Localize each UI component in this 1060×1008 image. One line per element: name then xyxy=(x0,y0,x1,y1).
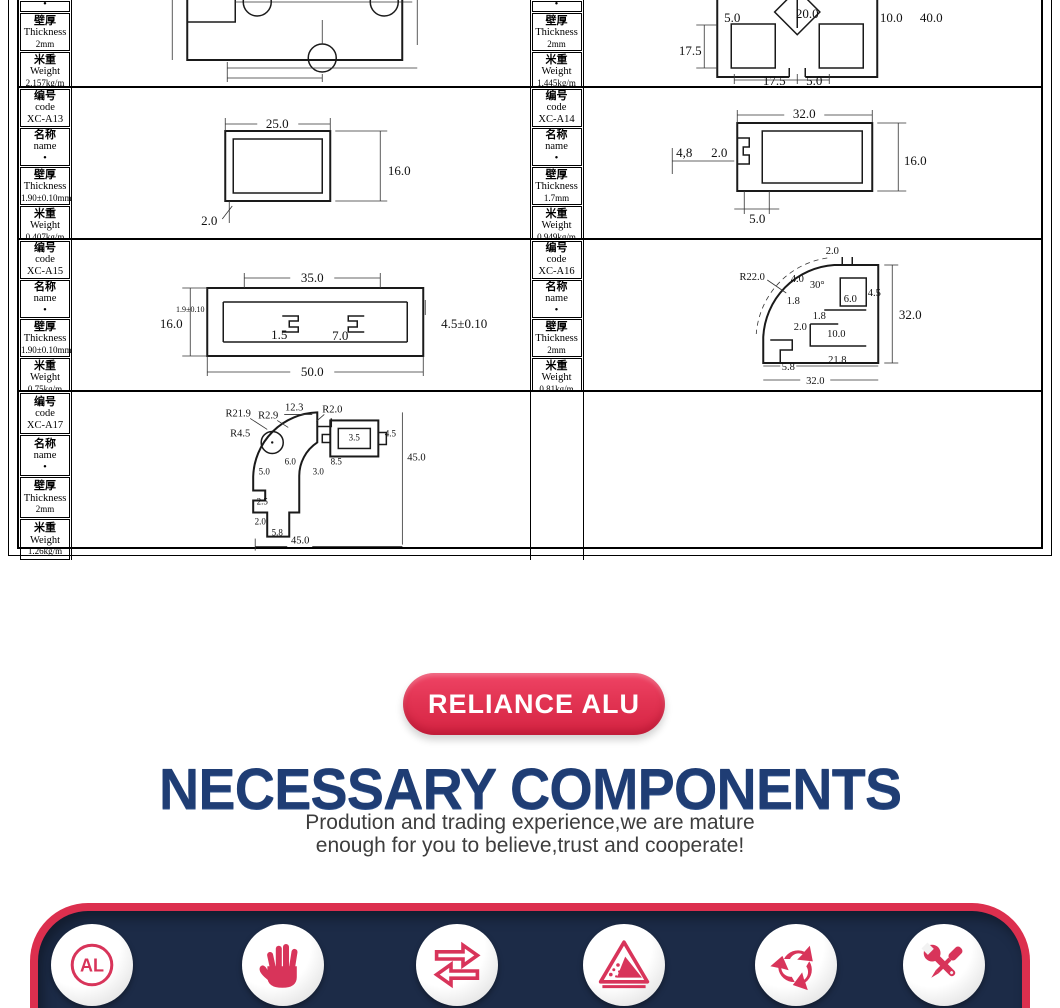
thickness-cell: 壁厚 Thickness 2mm xyxy=(20,477,70,518)
dim-label: 5.0 xyxy=(259,466,271,476)
thickness-cell: 壁厚 Thickness 2mm xyxy=(20,13,70,51)
dim-label: 2.5 xyxy=(257,497,269,507)
label-column: 编号 code XC-A13 名称 name • 壁厚 Thickness 1.… xyxy=(19,88,72,238)
dim-label: 5.0 xyxy=(806,73,822,86)
spec-row-3: 编号 code XC-A15 名称 name • 壁厚 Thickness 1.… xyxy=(19,238,1041,390)
name-cell: 名称 name • xyxy=(20,128,70,166)
code-cell: 编号 code XC-A16 xyxy=(532,241,582,279)
dim-label: 5.0 xyxy=(724,10,740,25)
dim-label: 4.5 xyxy=(385,428,397,438)
dim-label: 4.5 xyxy=(867,288,880,299)
weight-cell: 米重 Weight 0.81kg/m xyxy=(532,358,582,390)
dim-label: 7.0 xyxy=(332,328,348,343)
dim-label: 6.0 xyxy=(843,294,856,305)
name-cell: 名称 name • xyxy=(532,280,582,318)
dim-label: 4.5±0.10 xyxy=(441,316,487,331)
label-column-empty xyxy=(530,392,584,560)
label-column: • 壁厚 Thickness 2mm 米重 Weight 1.445kg/m xyxy=(530,0,584,86)
dim-label: R2.0 xyxy=(322,404,342,415)
thickness-cell: 壁厚 Thickness 1.7mm xyxy=(532,167,582,205)
dim-label: 4,8 xyxy=(676,145,692,160)
weight-cell: 米重 Weight 0.407kg/m xyxy=(20,206,70,238)
hand-icon xyxy=(242,924,324,1006)
dim-label: 10.0 xyxy=(879,10,902,25)
profile-drawing-r1-right: 5.0 20.0 10.0 40.0 17.5 17.5 5.0 xyxy=(584,0,1042,86)
dim-label: 12.3 xyxy=(285,402,303,413)
dim-label: 25.0 xyxy=(266,116,289,131)
dim-label: 16.0 xyxy=(388,163,411,178)
dim-label: 45.0 xyxy=(407,452,425,463)
dim-label: 45.0 xyxy=(291,536,309,547)
name-cell-partial: • xyxy=(20,1,70,12)
dim-label: 5.8 xyxy=(272,528,284,538)
dim-label: 2.0 xyxy=(825,246,838,257)
code-cell: 编号 code XC-A14 xyxy=(532,89,582,127)
dim-label: 10.0 xyxy=(827,329,845,340)
weight-cell: 米重 Weight 2.157kg/m xyxy=(20,52,70,86)
name-cell: 名称 name • xyxy=(20,435,70,476)
profile-drawing-xc-a13: 25.0 16.0 2.0 xyxy=(72,88,530,238)
thickness-cell: 壁厚 Thickness 2mm xyxy=(532,319,582,357)
dim-label: 3.5 xyxy=(349,432,361,442)
profile-drawing-xc-a15: 35.0 16.0 50.0 1.5 7.0 4.5±0.10 1.9±0.10 xyxy=(72,240,530,390)
dim-label: 3.0 xyxy=(313,466,325,476)
name-cell-partial: • xyxy=(532,1,582,12)
label-column: 编号 code XC-A17 名称 name • 壁厚 Thickness 2m… xyxy=(19,392,72,560)
dim-label: 32.0 xyxy=(792,106,815,121)
dim-label: 1.8 xyxy=(786,296,799,307)
dim-label: 5.8 xyxy=(781,362,794,373)
profile-drawing-empty xyxy=(584,392,1042,560)
dim-label: 2.0 xyxy=(201,213,217,228)
dim-label: 1.5 xyxy=(271,327,287,342)
falling-material-warning-icon xyxy=(583,924,665,1006)
label-column: 编号 code XC-A16 名称 name • 壁厚 Thickness 2m… xyxy=(530,240,584,390)
brand-badge-label: RELIANCE ALU xyxy=(428,689,640,720)
label-column: 编号 code XC-A14 名称 name • 壁厚 Thickness 1.… xyxy=(530,88,584,238)
dim-label: 2.0 xyxy=(711,145,727,160)
dim-label: R2.9 xyxy=(258,410,278,421)
dim-label: 17.5 xyxy=(678,43,701,58)
subtitle-line-2: enough for you to believe,trust and coop… xyxy=(0,835,1060,856)
dim-label: 16.0 xyxy=(903,153,926,168)
spec-row-2: 编号 code XC-A13 名称 name • 壁厚 Thickness 1.… xyxy=(19,86,1041,238)
label-column: 编号 code XC-A15 名称 name • 壁厚 Thickness 1.… xyxy=(19,240,72,390)
dim-label: 20.0 xyxy=(795,6,818,21)
weight-cell: 米重 Weight 1.26kg/m xyxy=(20,519,70,560)
weight-cell: 米重 Weight 1.445kg/m xyxy=(532,52,582,86)
brand-badge: RELIANCE ALU xyxy=(403,673,665,735)
dim-label: 5.0 xyxy=(749,211,765,226)
spec-row-1: • 壁厚 Thickness 2mm 米重 Weight 2.157kg/m xyxy=(19,0,1041,86)
dim-label: 21.8 xyxy=(828,355,846,366)
dim-label: 1.8 xyxy=(812,311,825,322)
dim-label: 30° xyxy=(809,280,824,291)
subtitle-line-1: Prodution and trading experience,we are … xyxy=(0,812,1060,833)
name-cell: 名称 name • xyxy=(20,280,70,318)
spec-row-4: 编号 code XC-A17 名称 name • 壁厚 Thickness 2m… xyxy=(19,390,1041,560)
profile-drawing-xc-a17: R21.9 R2.9 12.3 R2.0 R4.5 3.5 4.5 6.0 8.… xyxy=(72,392,530,560)
dim-label: 16.0 xyxy=(160,316,183,331)
dim-label: R22.0 xyxy=(739,272,764,283)
code-cell: 编号 code XC-A17 xyxy=(20,393,70,434)
dim-label: 2.0 xyxy=(255,517,267,527)
dim-label: 1.9±0.10 xyxy=(176,305,204,314)
dim-label: 6.0 xyxy=(285,456,297,466)
dim-label: 2.0 xyxy=(793,322,806,333)
page: • 壁厚 Thickness 2mm 米重 Weight 2.157kg/m xyxy=(0,0,1060,1008)
code-cell: 编号 code XC-A15 xyxy=(20,241,70,279)
thickness-cell: 壁厚 Thickness 1.90±0.10mm xyxy=(20,319,70,357)
repair-tools-icon xyxy=(903,924,985,1006)
footer-icon-band: AL xyxy=(30,903,1030,1008)
profile-drawing-xc-a14: 32.0 16.0 4,8 2.0 5.0 xyxy=(584,88,1042,238)
thickness-cell: 壁厚 Thickness 2mm xyxy=(532,13,582,51)
aluminum-al-icon: AL xyxy=(51,924,133,1006)
weight-cell: 米重 Weight 0.75kg/m xyxy=(20,358,70,390)
profile-drawing-xc-a16: R22.0 4.0 30° 2.0 4.5 6.0 1.8 1.8 2.0 10… xyxy=(584,240,1042,390)
dim-label: 35.0 xyxy=(301,270,324,285)
recycle-icon xyxy=(755,924,837,1006)
thickness-cell: 壁厚 Thickness 1.90±0.10mm xyxy=(20,167,70,205)
dim-label: 32.0 xyxy=(806,376,824,387)
profile-drawing-r1-left xyxy=(72,0,530,86)
spec-table-inner: • 壁厚 Thickness 2mm 米重 Weight 2.157kg/m xyxy=(17,0,1043,549)
section-subtitle: Prodution and trading experience,we are … xyxy=(0,812,1060,858)
weight-cell: 米重 Weight 0.949kg/m xyxy=(532,206,582,238)
name-cell: 名称 name • xyxy=(532,128,582,166)
exchange-arrows-icon xyxy=(416,924,498,1006)
dim-label: 32.0 xyxy=(898,307,921,322)
dim-label: 17.5 xyxy=(762,73,785,86)
dim-label: 8.5 xyxy=(331,456,343,466)
dim-label: R21.9 xyxy=(225,408,250,419)
dim-label: R4.5 xyxy=(230,428,250,439)
label-column: • 壁厚 Thickness 2mm 米重 Weight 2.157kg/m xyxy=(19,0,72,86)
dim-label: 50.0 xyxy=(301,364,324,379)
dim-label: 4.0 xyxy=(790,274,803,285)
code-cell: 编号 code XC-A13 xyxy=(20,89,70,127)
dim-label: 40.0 xyxy=(919,10,942,25)
al-icon-label: AL xyxy=(80,956,104,976)
profile-spec-table: • 壁厚 Thickness 2mm 米重 Weight 2.157kg/m xyxy=(8,0,1052,556)
